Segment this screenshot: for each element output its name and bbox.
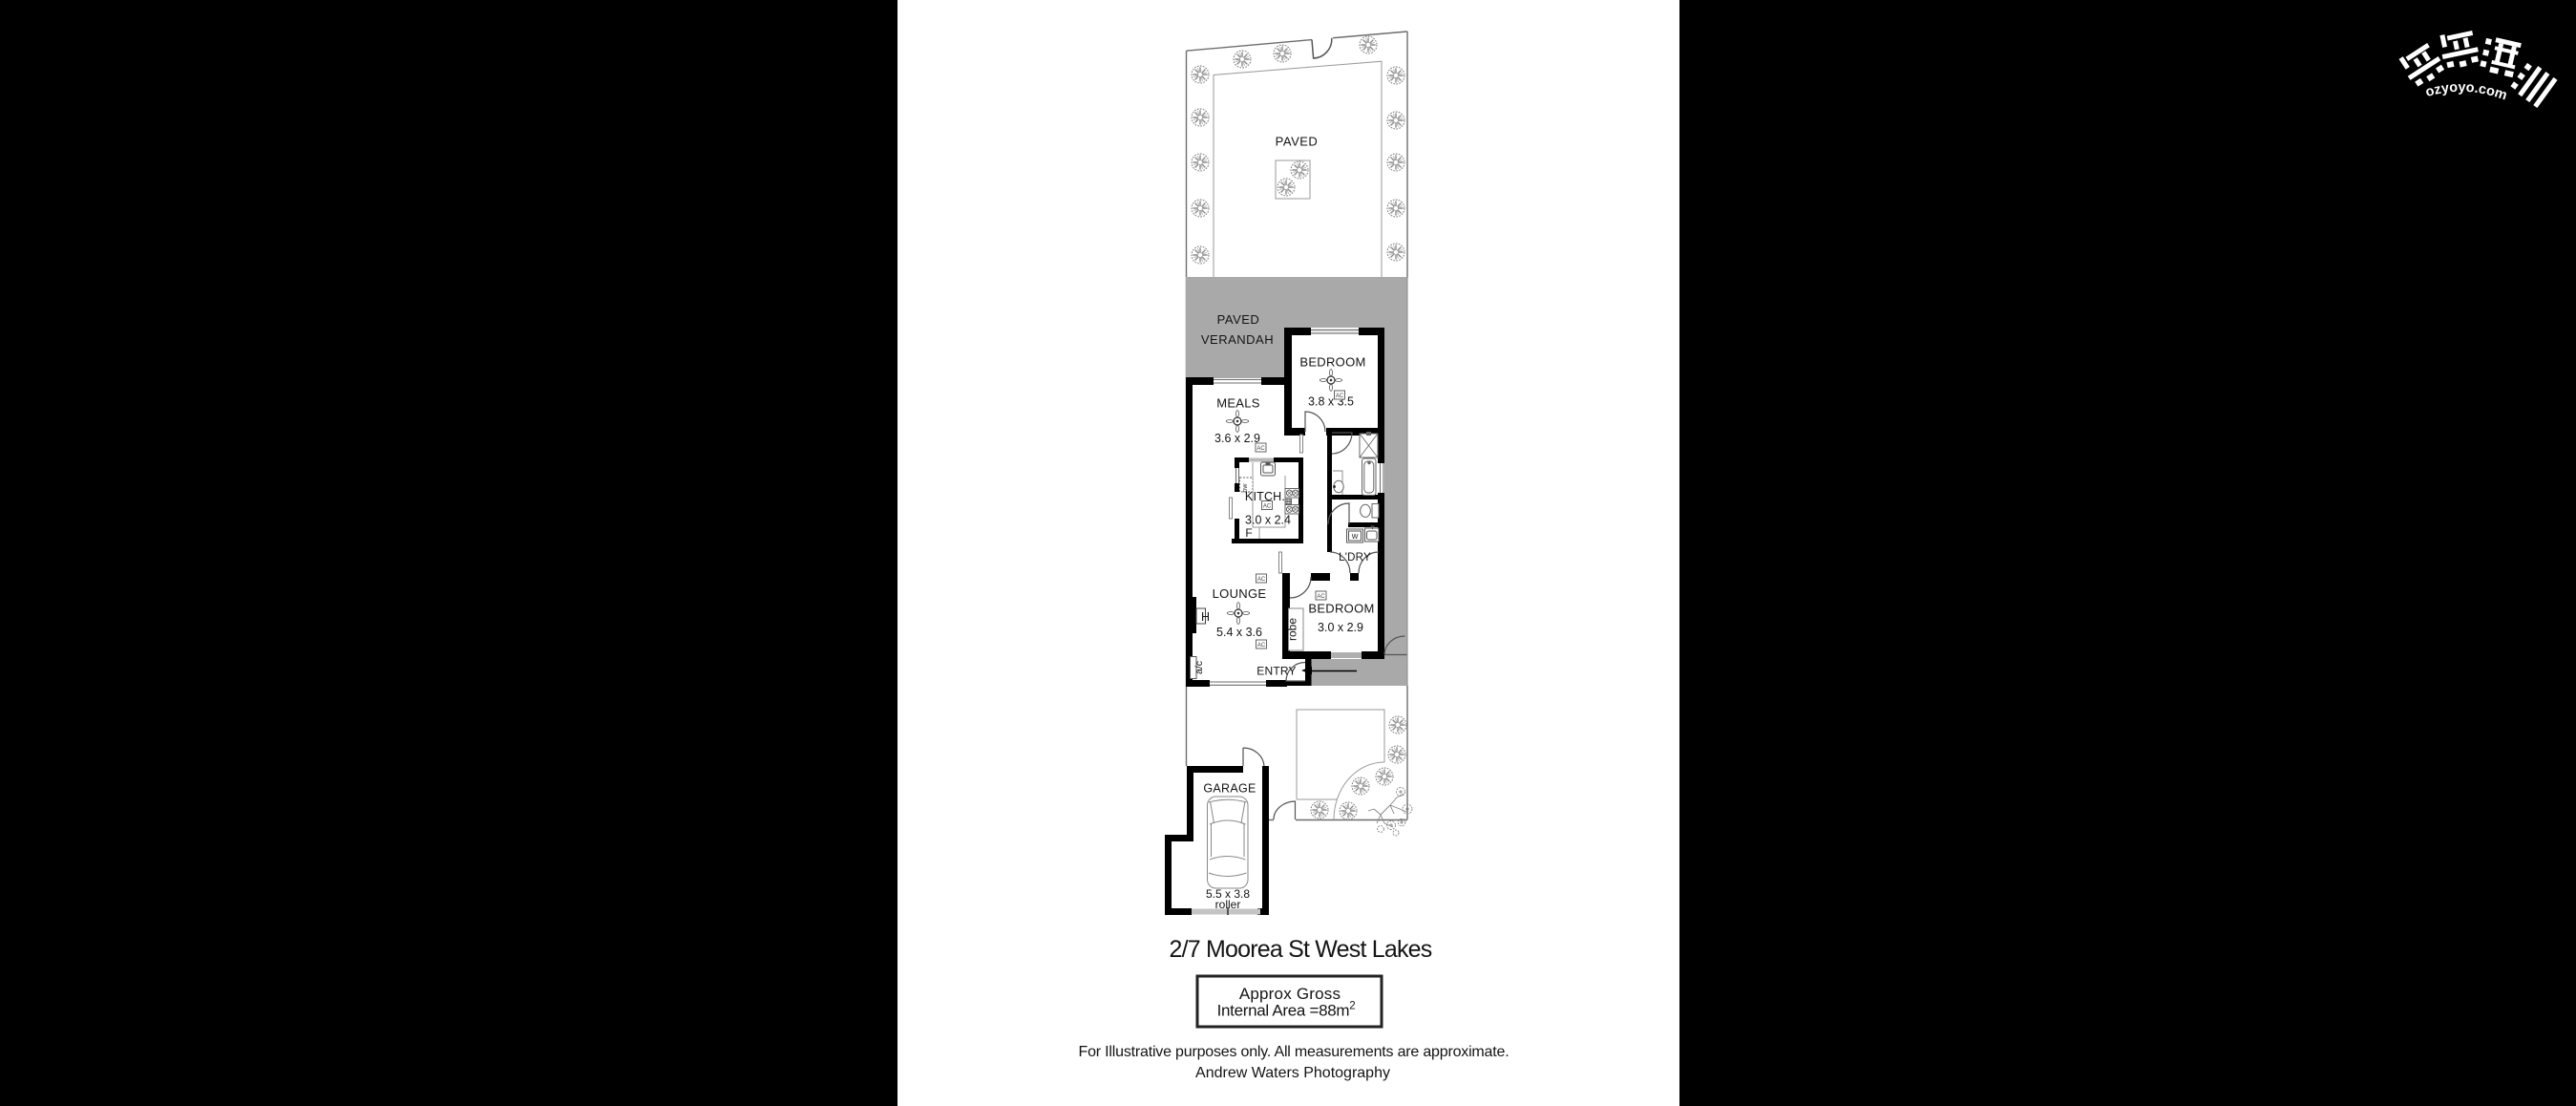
svg-text:3.0 x 2.4: 3.0 x 2.4 <box>1245 514 1291 527</box>
svg-text:ENTRY: ENTRY <box>1256 665 1296 678</box>
svg-text:W: W <box>1352 534 1359 541</box>
svg-text:robe: robe <box>1286 618 1299 641</box>
svg-text:PAVED: PAVED <box>1276 135 1319 149</box>
svg-text:3.0 x 2.9: 3.0 x 2.9 <box>1318 621 1363 634</box>
svg-text:Approx Gross: Approx Gross <box>1239 985 1341 1003</box>
svg-text:Internal Area =88m2: Internal Area =88m2 <box>1217 1001 1356 1020</box>
svg-text:L'DRY: L'DRY <box>1339 552 1371 564</box>
svg-text:a/c: a/c <box>1193 661 1205 674</box>
svg-text:Andrew Waters Photography: Andrew Waters Photography <box>1195 1065 1390 1081</box>
svg-text:F: F <box>1245 526 1252 540</box>
svg-text:BEDROOM: BEDROOM <box>1308 602 1374 616</box>
svg-text:VERANDAH: VERANDAH <box>1201 332 1274 347</box>
svg-text:roller: roller <box>1215 898 1241 911</box>
svg-text:LOUNGE: LOUNGE <box>1213 586 1267 601</box>
svg-text:3.8 x 3.5: 3.8 x 3.5 <box>1308 395 1354 409</box>
svg-text:ozyoyo.com: ozyoyo.com <box>2424 80 2509 104</box>
svg-text:5.4 x 3.6: 5.4 x 3.6 <box>1216 626 1262 639</box>
svg-text:BEDROOM: BEDROOM <box>1299 355 1365 370</box>
svg-text:For Illustrative purposes only: For Illustrative purposes only. All meas… <box>1079 1044 1510 1060</box>
svg-text:H: H <box>1201 610 1210 624</box>
svg-text:PAVED: PAVED <box>1217 312 1260 327</box>
svg-text:GARAGE: GARAGE <box>1203 782 1256 796</box>
svg-text:3.6 x 2.9: 3.6 x 2.9 <box>1214 432 1260 445</box>
svg-text:MEALS: MEALS <box>1216 396 1260 411</box>
svg-text:2/7 Moorea St West Lakes: 2/7 Moorea St West Lakes <box>1170 936 1432 963</box>
